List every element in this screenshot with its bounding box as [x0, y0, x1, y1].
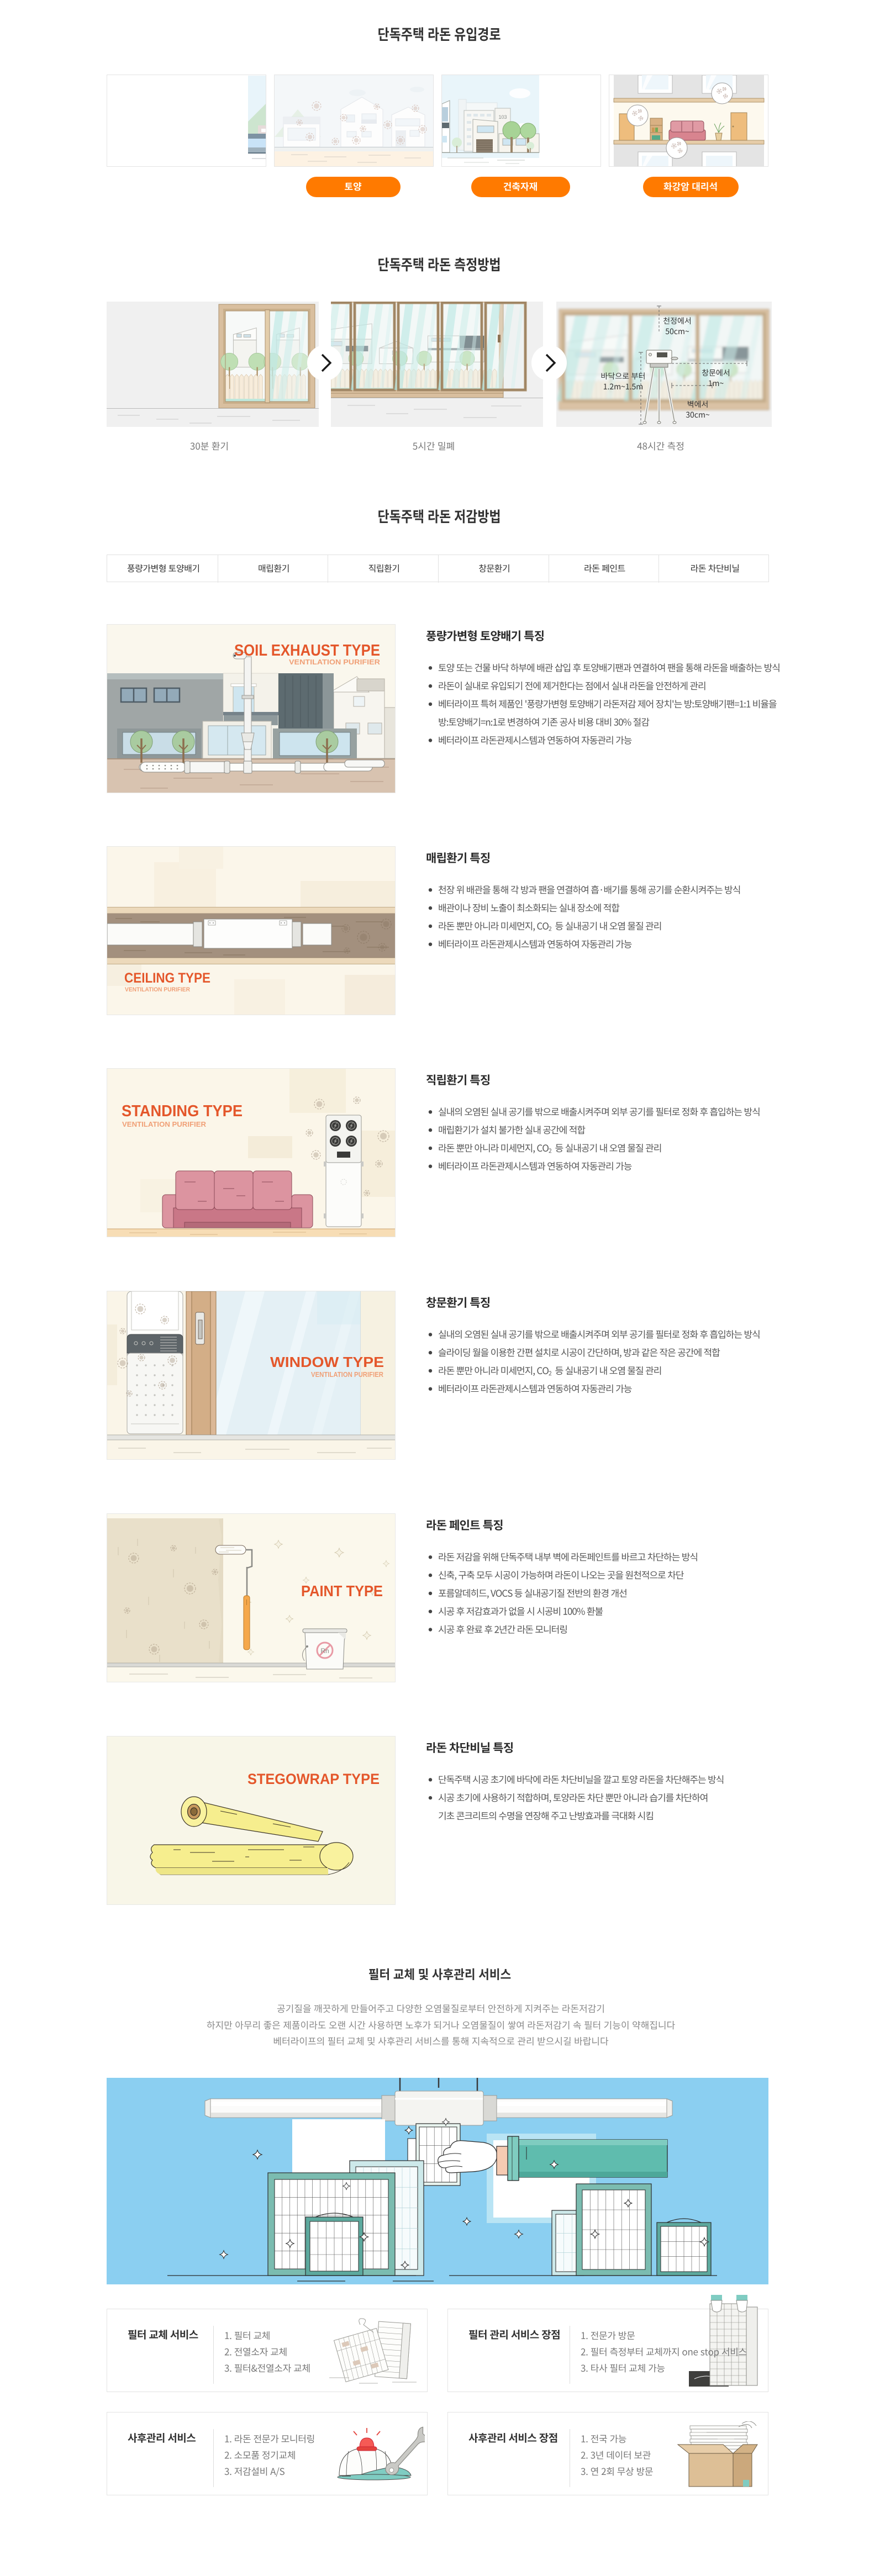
svg-text:SOIL EXHAUST TYPE: SOIL EXHAUST TYPE [234, 642, 380, 659]
svg-text:CEILING TYPE: CEILING TYPE [124, 970, 210, 986]
svg-text:STEGOWRAP TYPE: STEGOWRAP TYPE [247, 1771, 380, 1787]
svg-text:Rn: Rn [320, 1647, 329, 1655]
svg-text:103: 103 [498, 114, 507, 120]
svg-text:WINDOW TYPE: WINDOW TYPE [270, 1354, 384, 1370]
svg-text:VENTILATION PURIFIER: VENTILATION PURIFIER [122, 1121, 206, 1128]
svg-text:VENTILATION PURIFIER: VENTILATION PURIFIER [311, 1370, 384, 1379]
svg-text:VENTILATION PURIFIER: VENTILATION PURIFIER [125, 986, 190, 993]
svg-text:VENTILATION PURIFIER: VENTILATION PURIFIER [289, 658, 380, 666]
svg-text:PAINT TYPE: PAINT TYPE [301, 1582, 383, 1600]
svg-text:STANDING TYPE: STANDING TYPE [122, 1102, 243, 1120]
